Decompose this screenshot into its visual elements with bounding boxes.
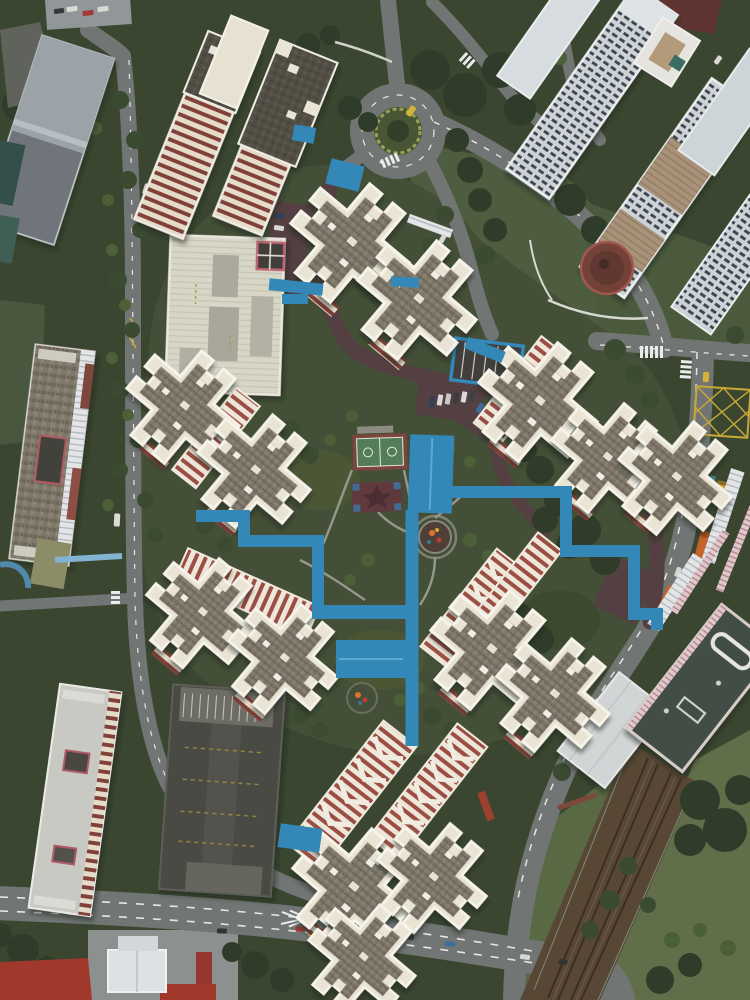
aerial-photo-stage	[0, 0, 750, 1000]
aerial-photo	[0, 0, 750, 1000]
atmospheric-haze	[0, 0, 750, 1000]
